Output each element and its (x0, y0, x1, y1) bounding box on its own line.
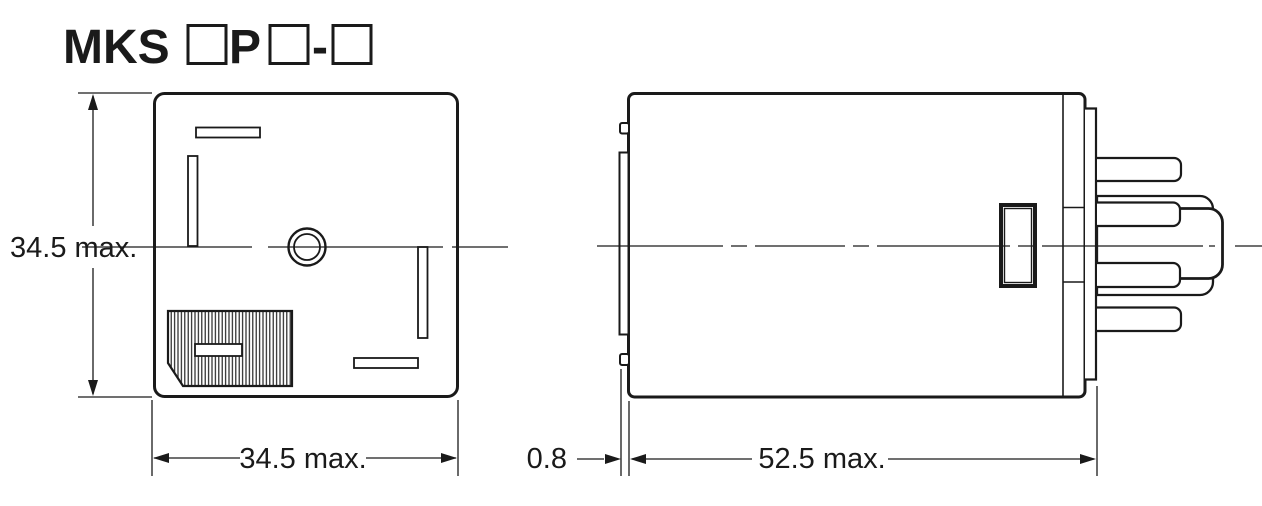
pin-2 (1097, 203, 1180, 227)
title-block: MKS P - (63, 21, 371, 74)
body-depth-dimension: 52.5 max. (630, 386, 1097, 476)
body-depth-label: 52.5 max. (758, 443, 885, 475)
front-height-dimension: 34.5 max. (10, 93, 152, 397)
pin-1 (1097, 158, 1181, 181)
front-width-label: 34.5 max. (239, 443, 366, 475)
arrowhead-up (88, 94, 98, 110)
front-width-dimension: 34.5 max. (152, 400, 458, 476)
model-option-box-2 (270, 26, 308, 64)
flange-offset-dimension: 0.8 (527, 369, 629, 476)
pin-4 (1097, 308, 1181, 332)
pin-base-plate (1085, 109, 1096, 380)
drawing-canvas: MKS P - 34.5 max. 34.5 max. (0, 0, 1262, 506)
model-separator: - (312, 21, 328, 74)
bottom-right-slot (354, 358, 418, 368)
center-boss (1176, 209, 1223, 279)
arrowhead-right (441, 453, 457, 463)
model-infix: P (229, 21, 261, 74)
right-slot (418, 247, 428, 338)
arrowhead-left (630, 454, 646, 464)
arrowhead-right (1080, 454, 1096, 464)
side-view (597, 94, 1262, 398)
left-slot (188, 156, 198, 246)
label-area-slot (195, 344, 242, 356)
pin-3 (1097, 263, 1180, 287)
model-option-box-3 (333, 26, 371, 64)
flange-offset-label: 0.8 (527, 443, 567, 475)
front-flange (620, 153, 629, 335)
model-option-box-1 (188, 26, 226, 64)
front-height-label: 34.5 max. (10, 232, 137, 264)
model-prefix: MKS (63, 21, 170, 74)
arrowhead-left (153, 453, 169, 463)
arrowhead-down (88, 380, 98, 396)
top-slot (196, 128, 260, 138)
front-tab-top (620, 123, 629, 134)
front-view (82, 94, 508, 397)
dimension-drawing: MKS P - 34.5 max. 34.5 max. (0, 0, 1262, 506)
front-tab-bottom (620, 354, 629, 365)
arrowhead-right (605, 454, 621, 464)
